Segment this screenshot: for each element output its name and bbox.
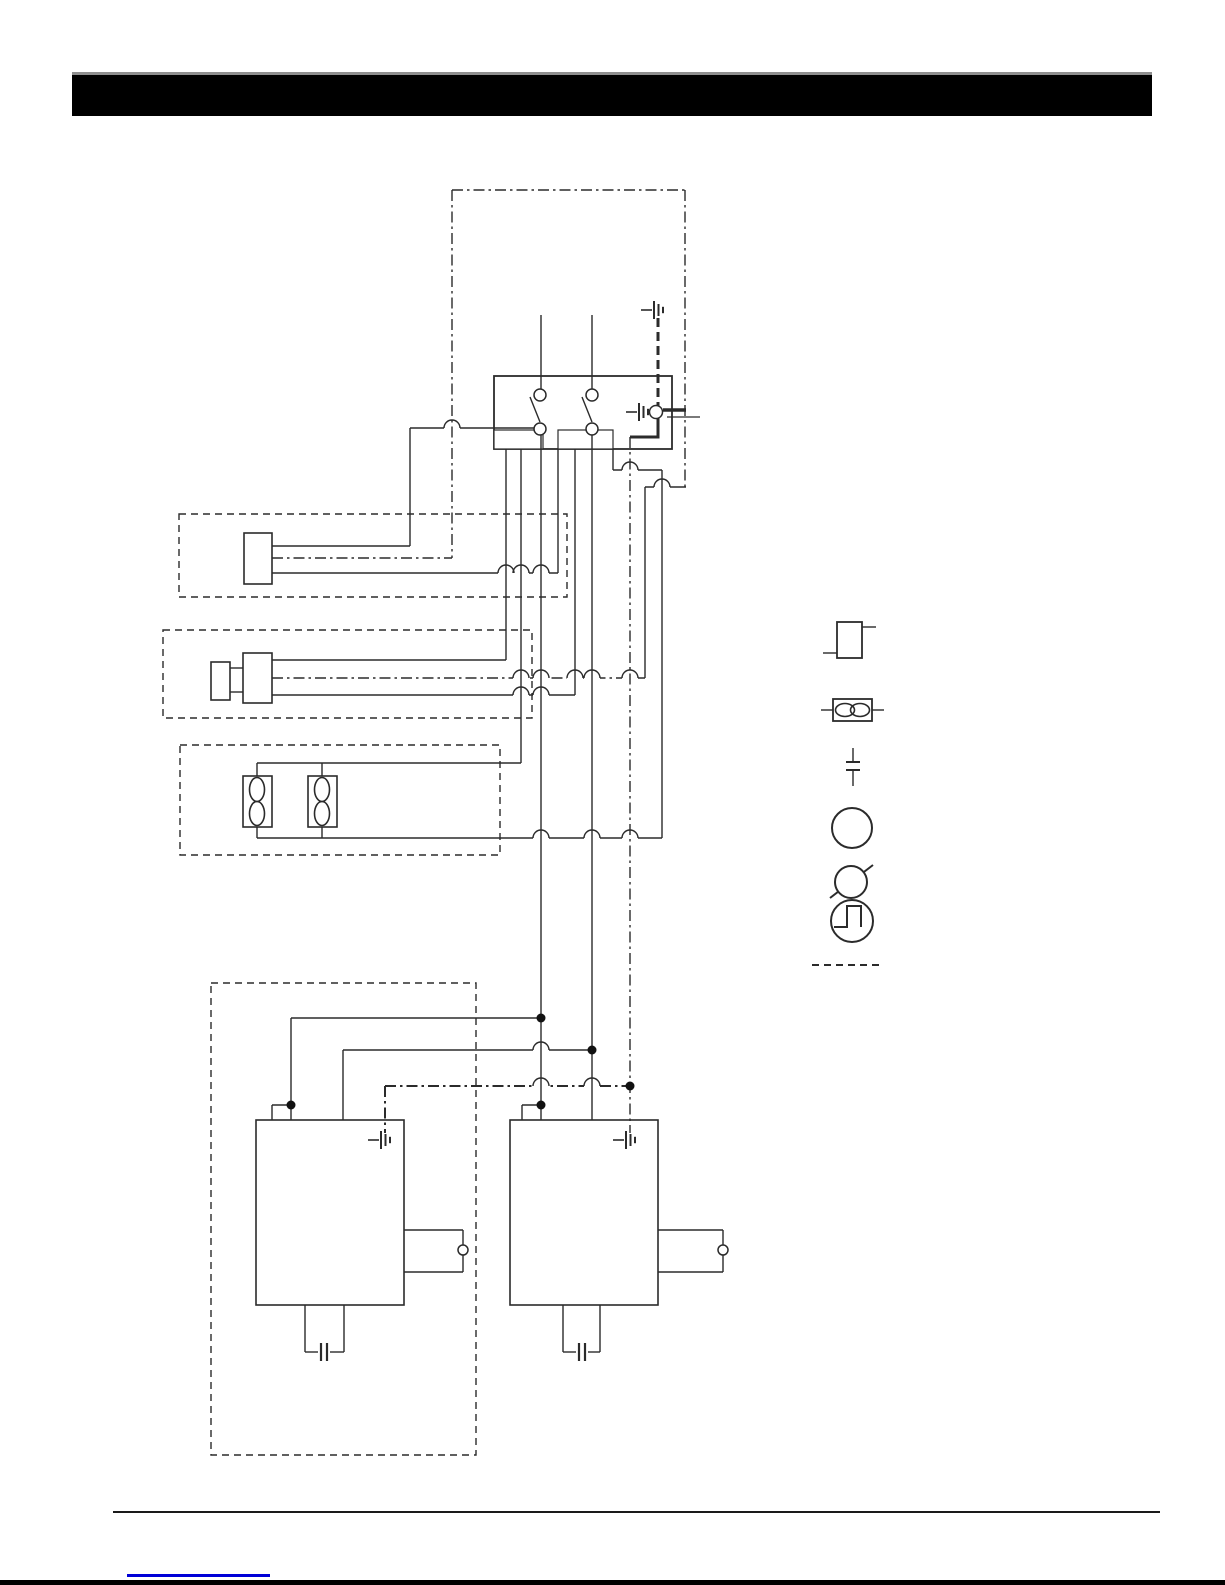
footer-rule	[113, 1511, 1160, 1513]
switch-contact	[586, 389, 598, 401]
protective-earth-symbol	[832, 808, 872, 848]
terminal-block	[558, 430, 613, 449]
page-bottom-bar	[0, 1580, 1225, 1585]
junction-dot	[287, 1101, 296, 1110]
motor-body	[211, 662, 230, 700]
junction-dot	[537, 1014, 546, 1023]
wiring-diagram	[0, 0, 1225, 1585]
earth-terminal	[650, 406, 663, 419]
board-terminal	[458, 1245, 468, 1255]
control-board	[510, 1120, 658, 1305]
junction-dot	[626, 1082, 635, 1091]
component-body	[244, 533, 272, 584]
legend-fan	[833, 699, 872, 721]
motor-body	[243, 653, 272, 703]
legend-heating-element	[837, 622, 862, 658]
junction-dot	[537, 1101, 546, 1110]
module-outline-element	[179, 514, 567, 597]
switch-contact	[534, 423, 546, 435]
junction-dot	[588, 1046, 597, 1055]
chassis-ground-icon	[641, 301, 663, 319]
switch-contact	[586, 423, 598, 435]
switch-contact	[534, 389, 546, 401]
board-terminal	[718, 1245, 728, 1255]
footer-link[interactable]	[127, 1574, 270, 1577]
crossed-circle-symbol	[835, 866, 867, 898]
document-page	[0, 0, 1225, 1585]
